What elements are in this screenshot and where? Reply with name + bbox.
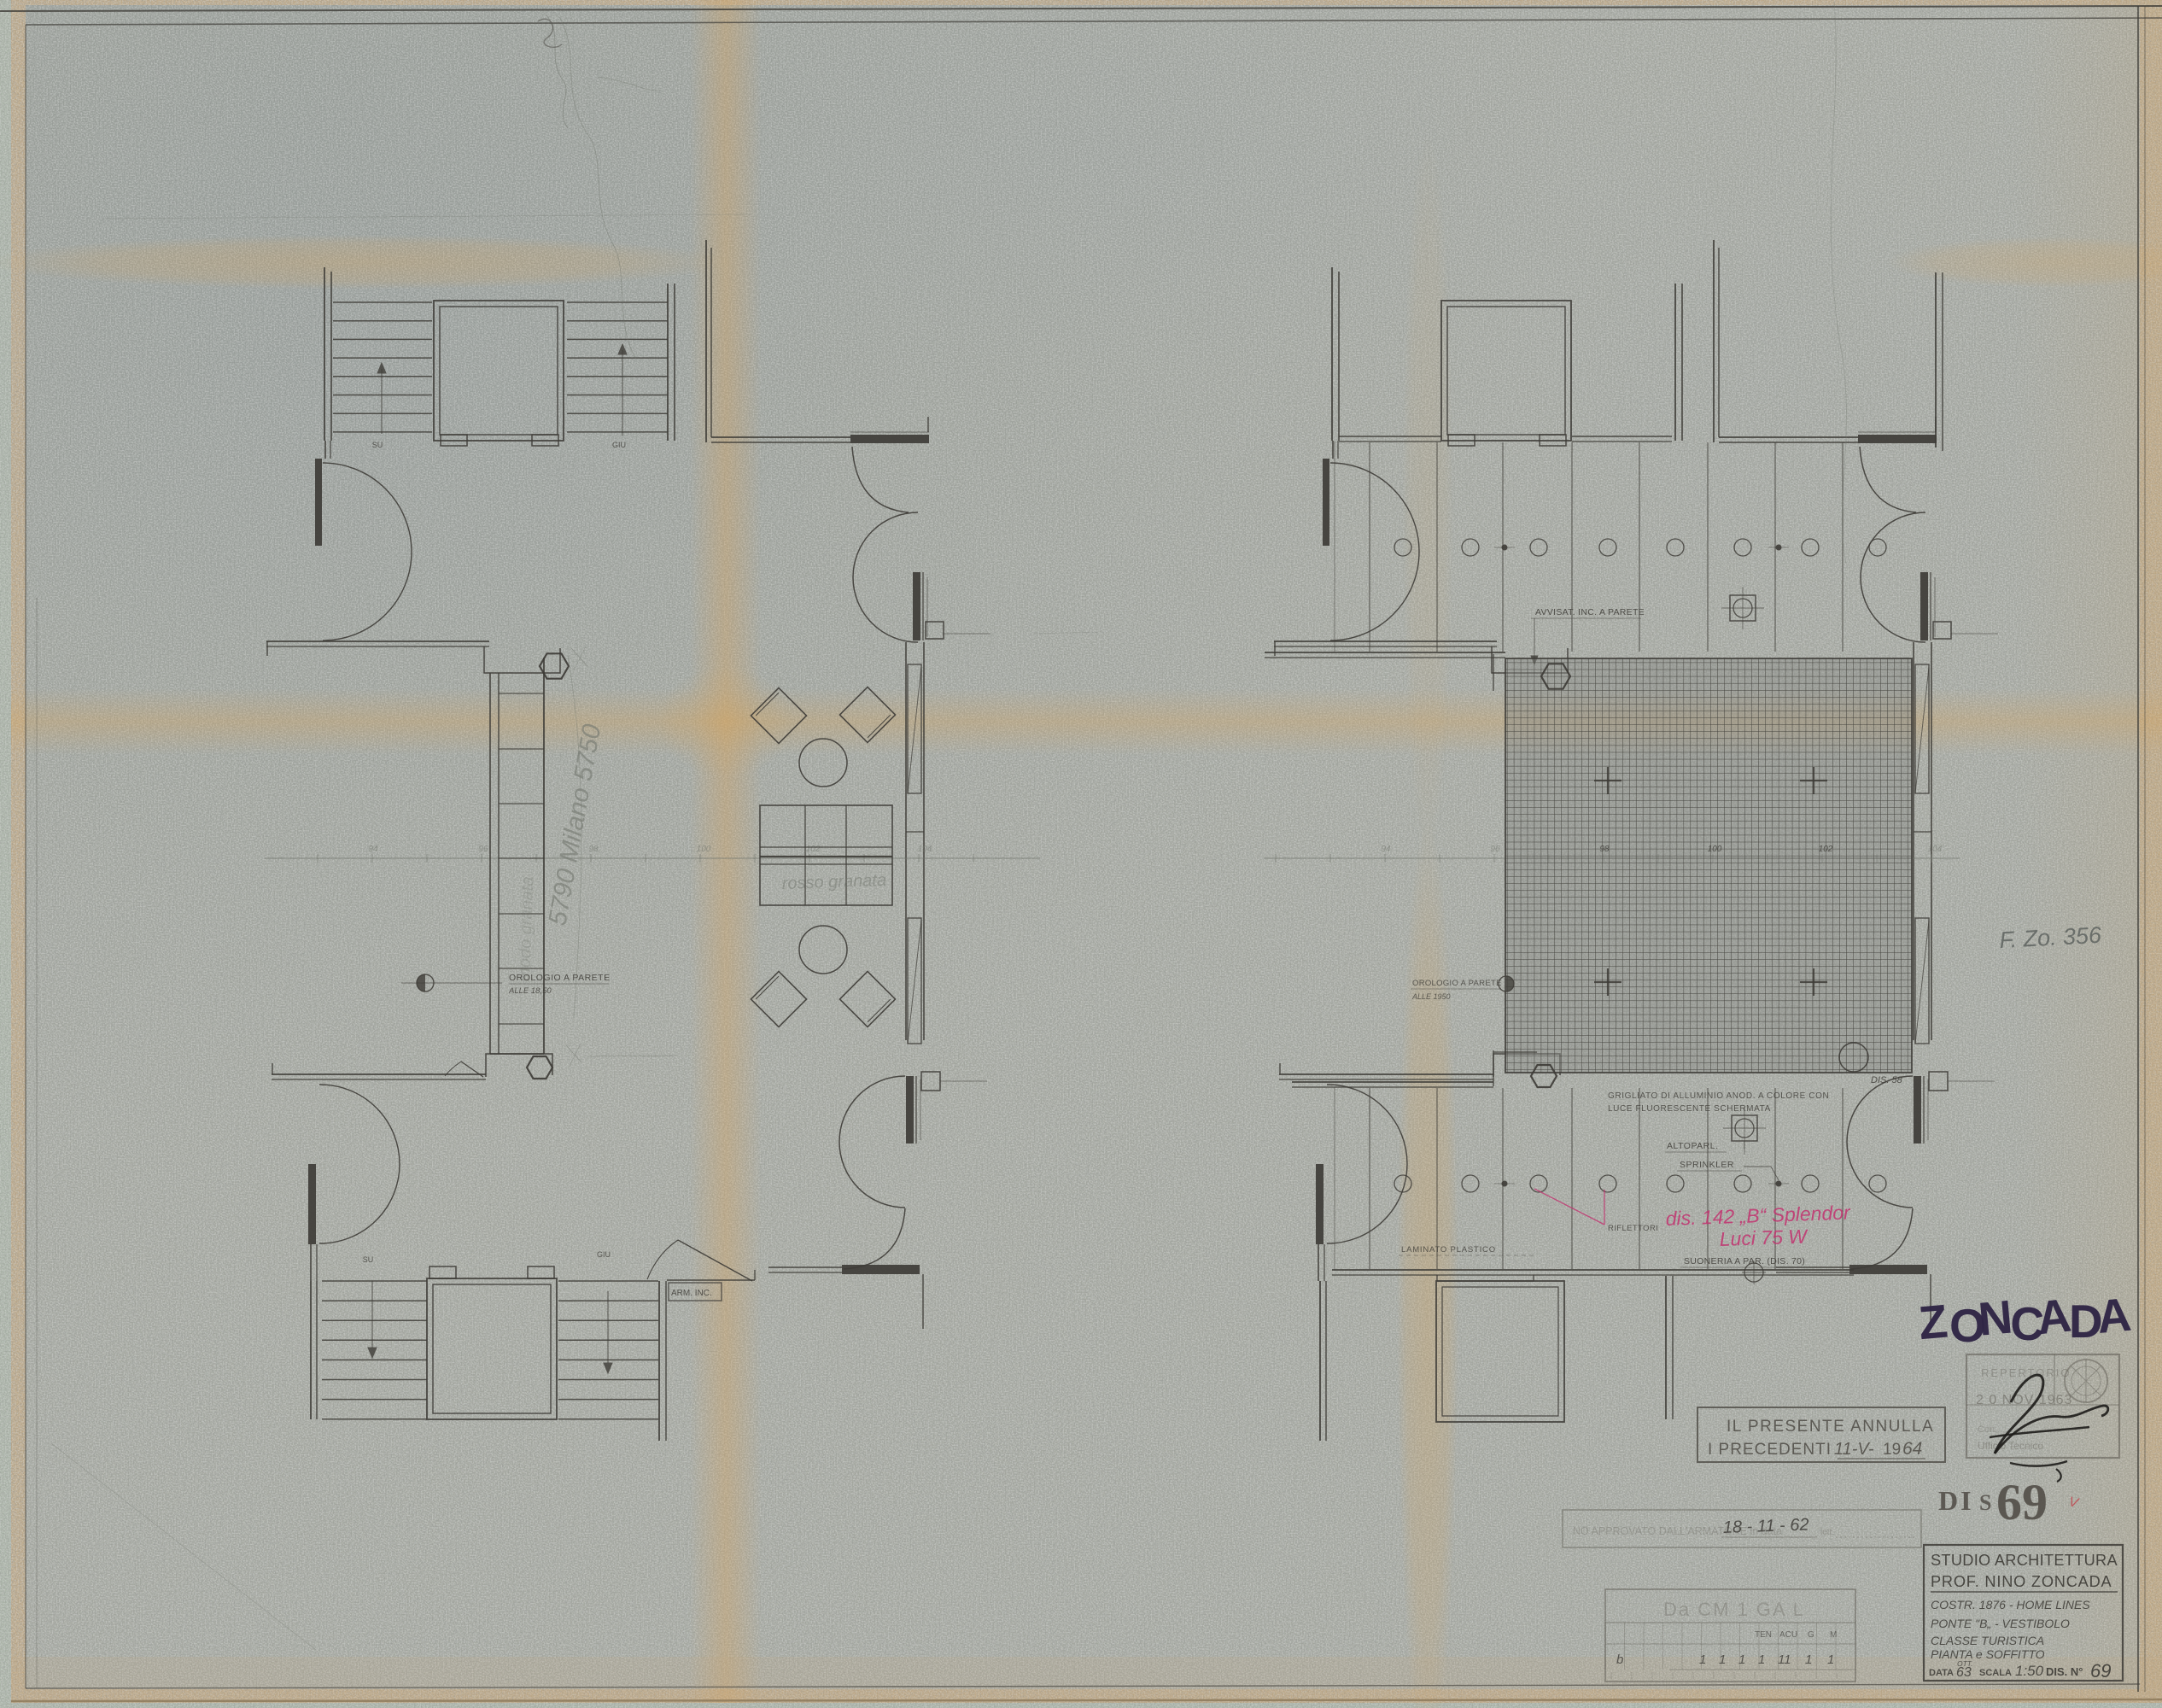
svg-text:98: 98 xyxy=(588,845,599,854)
svg-text:SPRINKLER: SPRINKLER xyxy=(1680,1160,1734,1170)
svg-text:rosso granata: rosso granata xyxy=(781,871,886,893)
svg-text:DIS. N°: DIS. N° xyxy=(2046,1665,2083,1678)
svg-text:GRIGLIATO DI ALLUMINIO ANOD. A: GRIGLIATO DI ALLUMINIO ANOD. A COLORE CO… xyxy=(1608,1091,1829,1101)
svg-text:M: M xyxy=(1830,1630,1837,1640)
svg-text:modo granata: modo granata xyxy=(515,876,537,982)
svg-text:LUCE FLUORESCENTE SCHERMATA: LUCE FLUORESCENTE SCHERMATA xyxy=(1608,1104,1771,1114)
svg-text:S: S xyxy=(1979,1490,1991,1515)
svg-text:100: 100 xyxy=(697,845,711,854)
svg-text:SU: SU xyxy=(372,441,383,449)
svg-text:RIFLETTORI: RIFLETTORI xyxy=(1608,1224,1658,1233)
svg-text:REPERTORIO: REPERTORIO xyxy=(1981,1366,2071,1379)
svg-text:AVVISAT. INC. A PARETE: AVVISAT. INC. A PARETE xyxy=(1535,607,1645,617)
svg-text:A: A xyxy=(2035,1289,2074,1345)
svg-text:ACU: ACU xyxy=(1779,1630,1797,1640)
svg-text:Luci 75 W: Luci 75 W xyxy=(1719,1225,1808,1250)
svg-text:OROLOGIO A PARETE: OROLOGIO A PARETE xyxy=(509,973,611,983)
svg-text:COSTR. 1876 - HOME LINES: COSTR. 1876 - HOME LINES xyxy=(1931,1598,2090,1611)
svg-text:19: 19 xyxy=(1883,1441,1901,1459)
svg-text:63: 63 xyxy=(1956,1665,1972,1680)
svg-text:64: 64 xyxy=(1902,1439,1922,1459)
svg-text:100: 100 xyxy=(1708,845,1722,854)
svg-text:DATA: DATA xyxy=(1929,1668,1954,1678)
svg-text:ALTOPARL.: ALTOPARL. xyxy=(1667,1141,1719,1151)
svg-text:98: 98 xyxy=(1599,845,1610,854)
svg-text:F. Zo. 356: F. Zo. 356 xyxy=(1999,922,2103,953)
svg-text:69: 69 xyxy=(1996,1474,2048,1530)
svg-text:TEN: TEN xyxy=(1755,1630,1772,1640)
svg-text:PIANTA e SOFFITTO: PIANTA e SOFFITTO xyxy=(1931,1647,2045,1661)
svg-text:94: 94 xyxy=(1381,845,1391,854)
svg-text:A: A xyxy=(2095,1288,2133,1343)
svg-text:11-V-: 11-V- xyxy=(1834,1440,1874,1459)
svg-text:2 0 NOV 1963: 2 0 NOV 1963 xyxy=(1976,1393,2072,1407)
svg-text:DIS. 58: DIS. 58 xyxy=(1871,1075,1903,1085)
svg-text:LAMINATO PLASTICO: LAMINATO PLASTICO xyxy=(1401,1245,1496,1255)
svg-text:SU: SU xyxy=(363,1255,374,1264)
svg-text:PROF. NINO ZONCADA: PROF. NINO ZONCADA xyxy=(1931,1573,2112,1590)
svg-text:CLASSE TURISTICA: CLASSE TURISTICA xyxy=(1931,1634,2044,1647)
svg-text:b: b xyxy=(1616,1652,1623,1667)
svg-text:96: 96 xyxy=(1490,845,1500,854)
svg-text:18 - 11 - 62: 18 - 11 - 62 xyxy=(1722,1515,1809,1537)
svg-text:SCALA: SCALA xyxy=(1979,1668,2012,1678)
svg-text:104: 104 xyxy=(1928,845,1943,854)
svg-text:N: N xyxy=(1976,1290,2014,1346)
svg-text:DI: DI xyxy=(1938,1485,1974,1516)
svg-text:102: 102 xyxy=(1819,845,1833,854)
svg-text:104: 104 xyxy=(918,845,932,854)
svg-text:GIU: GIU xyxy=(612,441,626,449)
svg-text:G: G xyxy=(1808,1630,1814,1640)
svg-text:Z: Z xyxy=(1917,1295,1950,1350)
svg-text:I PRECEDENTI: I PRECEDENTI xyxy=(1708,1441,1832,1459)
svg-text:1: 1 xyxy=(1827,1652,1834,1667)
svg-text:OROLOGIO A PARETE: OROLOGIO A PARETE xyxy=(1412,979,1502,988)
svg-text:ARM. INC.: ARM. INC. xyxy=(671,1289,712,1298)
svg-text:1: 1 xyxy=(1805,1652,1812,1667)
svg-text:1: 1 xyxy=(1719,1652,1726,1667)
svg-text:IL PRESENTE ANNULLA: IL PRESENTE ANNULLA xyxy=(1727,1418,1934,1436)
svg-text:11: 11 xyxy=(1778,1652,1791,1667)
svg-text:96: 96 xyxy=(478,845,488,854)
svg-text:GIU: GIU xyxy=(597,1250,611,1259)
svg-text:1: 1 xyxy=(1738,1652,1745,1667)
svg-text:SUONERIA A PAR. (DIS. 70): SUONERIA A PAR. (DIS. 70) xyxy=(1684,1256,1805,1266)
svg-text:1:50: 1:50 xyxy=(2015,1663,2044,1679)
svg-text:1: 1 xyxy=(1758,1652,1765,1667)
svg-text:Da CM 1 GA L: Da CM 1 GA L xyxy=(1663,1599,1805,1620)
svg-text:102: 102 xyxy=(806,845,821,854)
svg-text:ALLE 1950: ALLE 1950 xyxy=(1411,992,1451,1001)
svg-text:STUDIO ARCHITETTURA: STUDIO ARCHITETTURA xyxy=(1931,1552,2118,1569)
svg-text:1: 1 xyxy=(1699,1652,1706,1667)
svg-text:Ufficio Tecnico: Ufficio Tecnico xyxy=(1978,1440,2043,1452)
svg-text:69: 69 xyxy=(2090,1660,2111,1682)
svg-text:ALLE 18,50: ALLE 18,50 xyxy=(508,986,552,996)
svg-text:94: 94 xyxy=(368,845,378,854)
svg-text:PONTE "B„ - VESTIBOLO: PONTE "B„ - VESTIBOLO xyxy=(1931,1617,2070,1630)
svg-text:lett.: lett. xyxy=(1820,1528,1834,1537)
